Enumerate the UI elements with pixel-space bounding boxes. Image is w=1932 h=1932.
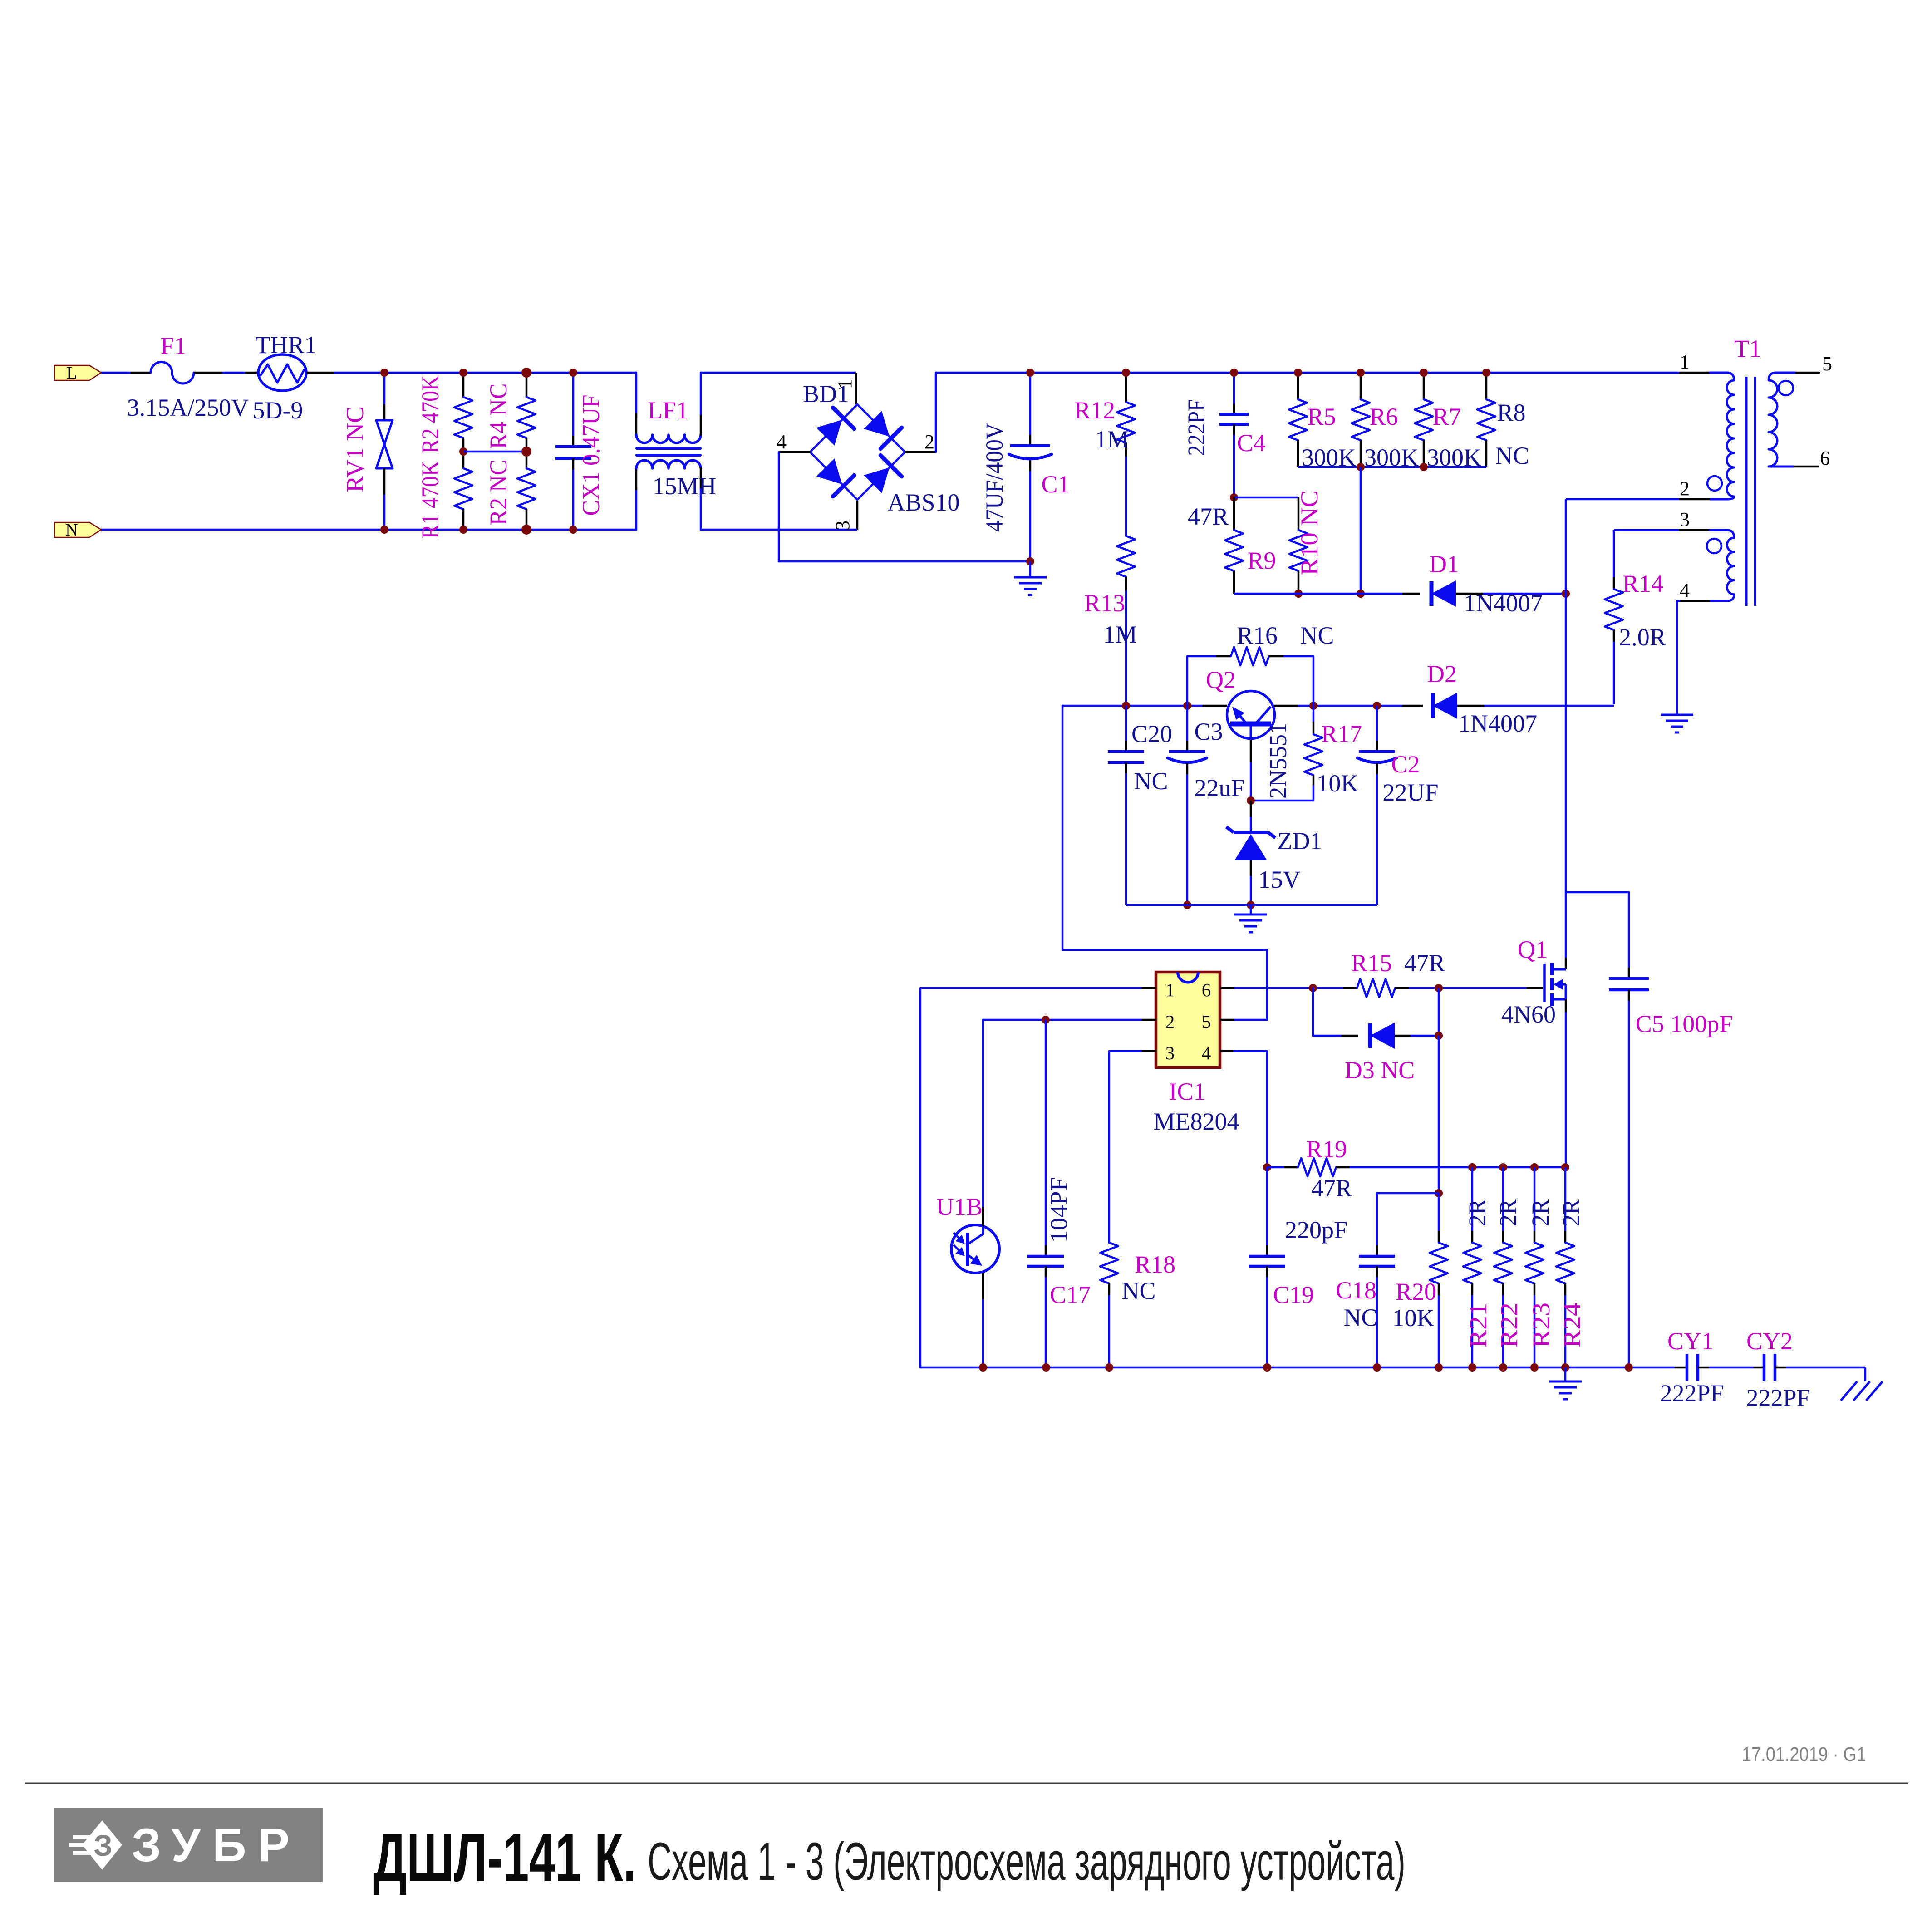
svg-text:22UF: 22UF: [1382, 779, 1438, 806]
svg-text:3: 3: [1680, 508, 1690, 531]
svg-text:R2 NC: R2 NC: [485, 460, 512, 526]
svg-text:R10 NC: R10 NC: [1296, 490, 1323, 575]
svg-text:104PF: 104PF: [1045, 1177, 1072, 1243]
svg-text:2R: 2R: [1558, 1199, 1585, 1226]
svg-text:10K: 10K: [1317, 770, 1359, 797]
svg-text:D2: D2: [1427, 660, 1457, 688]
svg-text:U1B: U1B: [936, 1193, 983, 1220]
svg-text:C4: C4: [1237, 429, 1265, 457]
svg-text:R2 470K: R2 470K: [417, 375, 444, 453]
svg-text:NC: NC: [1134, 767, 1168, 795]
svg-text:1: 1: [834, 379, 856, 389]
svg-text:C17: C17: [1050, 1281, 1091, 1308]
svg-text:NC: NC: [1343, 1304, 1377, 1331]
svg-text:N: N: [65, 521, 78, 540]
svg-text:CY1: CY1: [1667, 1327, 1714, 1355]
svg-text:1M: 1M: [1095, 426, 1129, 453]
svg-text:D3 NC: D3 NC: [1345, 1057, 1415, 1084]
svg-text:222PF: 222PF: [1183, 399, 1210, 456]
svg-text:2: 2: [1680, 477, 1690, 500]
svg-text:2R: 2R: [1494, 1199, 1522, 1226]
svg-text:R17: R17: [1321, 720, 1362, 747]
svg-text:R15: R15: [1351, 949, 1392, 977]
svg-text:3: 3: [1165, 1042, 1175, 1063]
svg-text:R24: R24: [1558, 1303, 1586, 1348]
svg-text:R23: R23: [1528, 1303, 1555, 1348]
svg-text:R1 470K: R1 470K: [417, 461, 444, 539]
svg-text:5: 5: [1822, 353, 1832, 375]
svg-text:R7: R7: [1432, 403, 1461, 430]
svg-text:IC1: IC1: [1169, 1078, 1206, 1105]
svg-text:47R: 47R: [1311, 1175, 1352, 1202]
svg-text:RV1 NC: RV1 NC: [341, 406, 369, 492]
svg-text:R18: R18: [1135, 1251, 1175, 1278]
svg-text:ДШЛ-141 К.: ДШЛ-141 К.: [373, 1819, 636, 1896]
svg-text:5: 5: [1202, 1011, 1211, 1032]
svg-text:F1: F1: [160, 332, 186, 359]
svg-text:C2: C2: [1391, 751, 1420, 778]
svg-text:L: L: [66, 364, 77, 383]
svg-text:C20: C20: [1131, 720, 1172, 747]
svg-text:2: 2: [1165, 1011, 1175, 1032]
svg-text:T1: T1: [1734, 335, 1761, 362]
svg-text:R21: R21: [1465, 1303, 1492, 1348]
svg-text:1M: 1M: [1103, 621, 1137, 648]
svg-text:R19: R19: [1306, 1136, 1347, 1163]
svg-text:R22: R22: [1495, 1303, 1523, 1348]
svg-text:CY2: CY2: [1746, 1327, 1793, 1355]
svg-text:C1: C1: [1041, 471, 1070, 498]
svg-text:2N5551: 2N5551: [1264, 723, 1292, 799]
svg-text:R9: R9: [1247, 547, 1276, 574]
svg-text:6: 6: [1820, 447, 1830, 469]
svg-text:222PF: 222PF: [1660, 1380, 1724, 1407]
svg-text:2.0R: 2.0R: [1619, 624, 1666, 651]
svg-text:Q1: Q1: [1518, 936, 1548, 963]
svg-text:ЗУБР: ЗУБР: [132, 1819, 301, 1872]
svg-text:R12: R12: [1074, 397, 1115, 424]
svg-text:22uF: 22uF: [1194, 774, 1244, 801]
svg-text:R16: R16: [1237, 622, 1278, 649]
svg-text:R13: R13: [1084, 590, 1125, 617]
svg-text:4: 4: [1202, 1042, 1211, 1063]
svg-text:D1: D1: [1429, 551, 1459, 578]
svg-text:NC: NC: [1495, 442, 1529, 469]
svg-text:THR1: THR1: [256, 331, 317, 359]
svg-text:R14: R14: [1622, 570, 1663, 597]
svg-text:220pF: 220pF: [1285, 1216, 1347, 1244]
svg-text:3: 3: [831, 521, 854, 531]
svg-text:ABS10: ABS10: [887, 489, 959, 516]
svg-text:1: 1: [1680, 351, 1690, 373]
svg-text:LF1: LF1: [648, 397, 688, 424]
svg-text:З: З: [93, 1829, 112, 1862]
svg-text:222PF: 222PF: [1746, 1384, 1810, 1411]
svg-text:C18: C18: [1336, 1277, 1376, 1304]
svg-text:ZD1: ZD1: [1278, 827, 1322, 855]
svg-text:6: 6: [1202, 979, 1211, 1000]
svg-text:1: 1: [1165, 979, 1175, 1000]
svg-text:C19: C19: [1273, 1281, 1314, 1308]
svg-text:47UF/400V: 47UF/400V: [981, 423, 1008, 532]
svg-text:Схема 1 - 3 (Электросхема заря: Схема 1 - 3 (Электросхема зарядного устр…: [648, 1832, 1406, 1892]
svg-text:17.01.2019 · G1: 17.01.2019 · G1: [1742, 1743, 1866, 1765]
svg-text:R4 NC: R4 NC: [485, 383, 512, 449]
svg-text:2R: 2R: [1464, 1199, 1491, 1226]
svg-text:1N4007: 1N4007: [1458, 710, 1537, 737]
svg-text:47R: 47R: [1188, 503, 1229, 530]
svg-text:R5: R5: [1307, 403, 1336, 430]
svg-text:ME8204: ME8204: [1154, 1108, 1239, 1135]
svg-text:4: 4: [777, 431, 787, 453]
svg-text:R8: R8: [1497, 399, 1525, 426]
svg-text:CX1 0.47UF: CX1 0.47UF: [577, 395, 605, 516]
svg-text:R6: R6: [1369, 403, 1398, 430]
svg-text:15MH: 15MH: [652, 472, 716, 500]
svg-text:1N4007: 1N4007: [1464, 590, 1543, 617]
svg-text:15V: 15V: [1259, 866, 1301, 893]
svg-text:47R: 47R: [1404, 949, 1445, 977]
svg-text:2: 2: [924, 431, 934, 453]
svg-text:NC: NC: [1121, 1277, 1155, 1304]
svg-text:Q2: Q2: [1206, 666, 1236, 693]
svg-text:10K: 10K: [1392, 1304, 1435, 1332]
svg-text:C5 100pF: C5 100pF: [1636, 1010, 1733, 1037]
svg-text:4N60: 4N60: [1501, 1001, 1556, 1028]
svg-text:5D-9: 5D-9: [253, 397, 303, 424]
svg-text:C3: C3: [1194, 718, 1223, 745]
svg-text:2R: 2R: [1527, 1199, 1554, 1226]
svg-text:4: 4: [1680, 579, 1690, 601]
svg-text:R20: R20: [1396, 1278, 1436, 1305]
svg-text:NC: NC: [1300, 622, 1334, 649]
svg-text:3.15A/250V: 3.15A/250V: [127, 394, 249, 421]
